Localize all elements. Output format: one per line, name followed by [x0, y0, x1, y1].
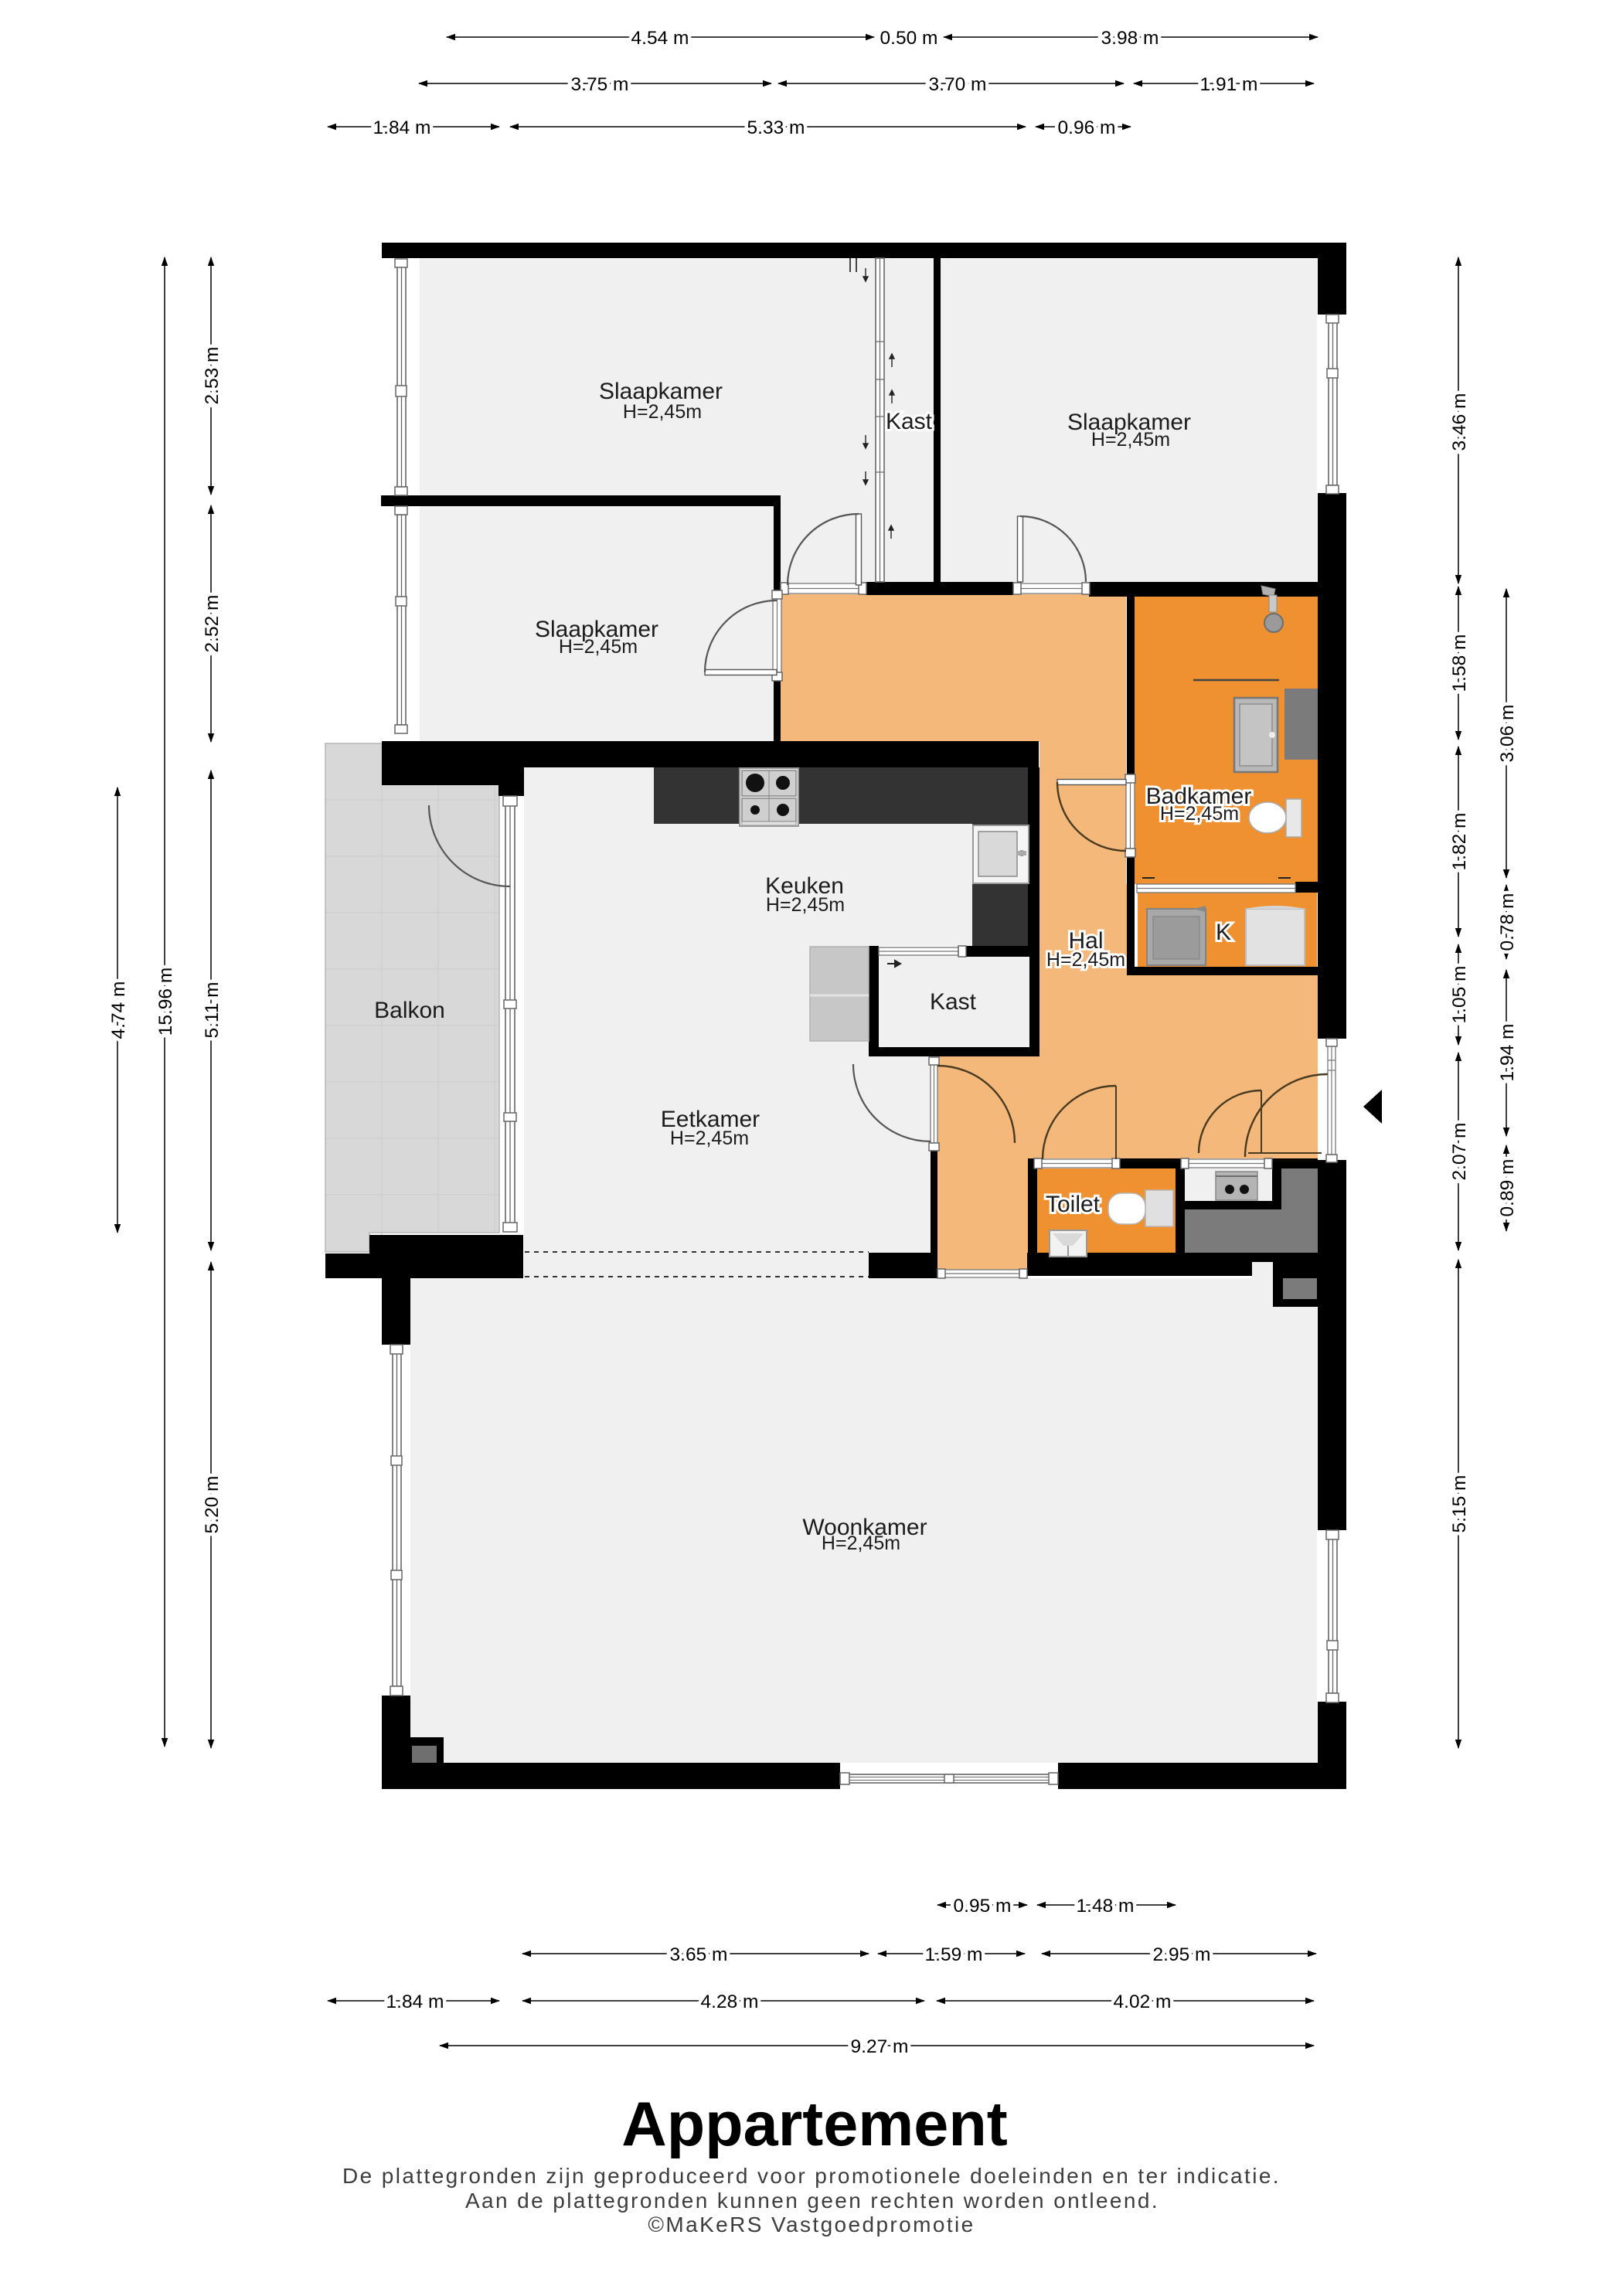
svg-text:H=2,45m: H=2,45m [670, 1128, 749, 1149]
svg-text:1.48 m: 1.48 m [1077, 1896, 1135, 1917]
svg-text:3.46 m: 3.46 m [1449, 393, 1470, 451]
svg-text:1.59 m: 1.59 m [925, 1944, 983, 1965]
svg-text:H=2,45m: H=2,45m [559, 636, 638, 658]
svg-text:4.02 m: 4.02 m [1114, 1992, 1172, 2012]
svg-text:3.70 m: 3.70 m [929, 74, 987, 95]
svg-text:K: K [1216, 920, 1231, 945]
svg-text:0.95 m: 0.95 m [954, 1896, 1012, 1917]
svg-text:Kast: Kast [930, 989, 977, 1015]
svg-text:De plattegronden zijn geproduc: De plattegronden zijn geproduceerd voor … [342, 2164, 1281, 2188]
svg-text:Toilet: Toilet [1046, 1192, 1101, 1217]
svg-text:3.06 m: 3.06 m [1497, 705, 1518, 763]
svg-text:2.95 m: 2.95 m [1153, 1944, 1211, 1965]
svg-text:H=2,45m: H=2,45m [822, 1532, 900, 1554]
svg-text:1.91 m: 1.91 m [1200, 74, 1258, 95]
svg-text:1.84 m: 1.84 m [373, 117, 431, 138]
svg-text:5.33 m: 5.33 m [747, 117, 805, 138]
svg-text:3.98 m: 3.98 m [1101, 28, 1159, 49]
svg-text:Aan de plattegronden kunnen ge: Aan de plattegronden kunnen geen rechten… [465, 2189, 1159, 2213]
svg-text:H=2,45m: H=2,45m [766, 894, 845, 916]
svg-text:0.96 m: 0.96 m [1058, 117, 1116, 138]
svg-text:H=2,45m: H=2,45m [1091, 429, 1170, 451]
svg-text:2.52 m: 2.52 m [202, 595, 223, 653]
svg-text:4.74 m: 4.74 m [108, 981, 129, 1039]
svg-text:H=2,45m: H=2,45m [1160, 803, 1239, 825]
svg-text:©MaKeRS Vastgoedpromotie: ©MaKeRS Vastgoedpromotie [648, 2213, 975, 2236]
svg-text:0.78 m: 0.78 m [1497, 893, 1518, 951]
svg-text:3.75 m: 3.75 m [571, 74, 629, 95]
svg-text:Balkon: Balkon [374, 998, 445, 1023]
svg-text:5.15 m: 5.15 m [1449, 1475, 1470, 1533]
svg-text:1.82 m: 1.82 m [1449, 813, 1470, 871]
svg-text:1.84 m: 1.84 m [386, 1992, 444, 2012]
svg-text:9.27 m: 9.27 m [851, 2036, 909, 2057]
svg-text:H=2,45m: H=2,45m [1046, 949, 1125, 971]
svg-text:2.53 m: 2.53 m [202, 347, 223, 405]
svg-text:15.96 m: 15.96 m [155, 968, 176, 1036]
svg-text:0.50 m: 0.50 m [880, 28, 938, 49]
svg-text:4.54 m: 4.54 m [631, 28, 689, 49]
svg-text:3.65 m: 3.65 m [670, 1944, 728, 1965]
svg-text:Appartement: Appartement [621, 2090, 1008, 2159]
svg-text:Kast: Kast [886, 409, 933, 434]
svg-text:1.58 m: 1.58 m [1449, 634, 1470, 692]
svg-text:0.89 m: 0.89 m [1497, 1159, 1518, 1217]
svg-text:5.20 m: 5.20 m [202, 1476, 223, 1534]
svg-text:1.94 m: 1.94 m [1497, 1024, 1518, 1082]
svg-text:4.28 m: 4.28 m [701, 1992, 759, 2012]
svg-text:H=2,45m: H=2,45m [623, 401, 702, 423]
svg-text:2.07 m: 2.07 m [1449, 1123, 1470, 1181]
svg-text:1.05 m: 1.05 m [1449, 966, 1470, 1024]
svg-text:5.11 m: 5.11 m [202, 981, 223, 1038]
